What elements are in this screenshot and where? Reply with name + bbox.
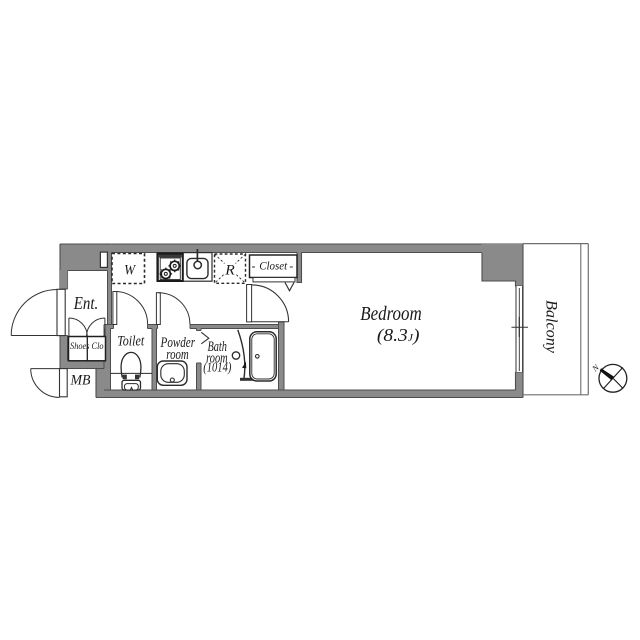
svg-text:MB: MB [70, 372, 91, 388]
svg-text:Ent.: Ent. [73, 293, 98, 313]
svg-text:Toilet: Toilet [117, 334, 145, 350]
svg-text:Closet: Closet [259, 259, 288, 273]
svg-text:Shoes Clo: Shoes Clo [70, 342, 104, 352]
svg-text:Bedroom: Bedroom [360, 303, 422, 325]
svg-text:(1014): (1014) [203, 360, 232, 375]
svg-text:R: R [224, 263, 235, 279]
svg-text:(8.3J): (8.3J) [377, 325, 420, 346]
svg-text:Balcony: Balcony [543, 300, 560, 353]
svg-text:W: W [124, 263, 137, 279]
